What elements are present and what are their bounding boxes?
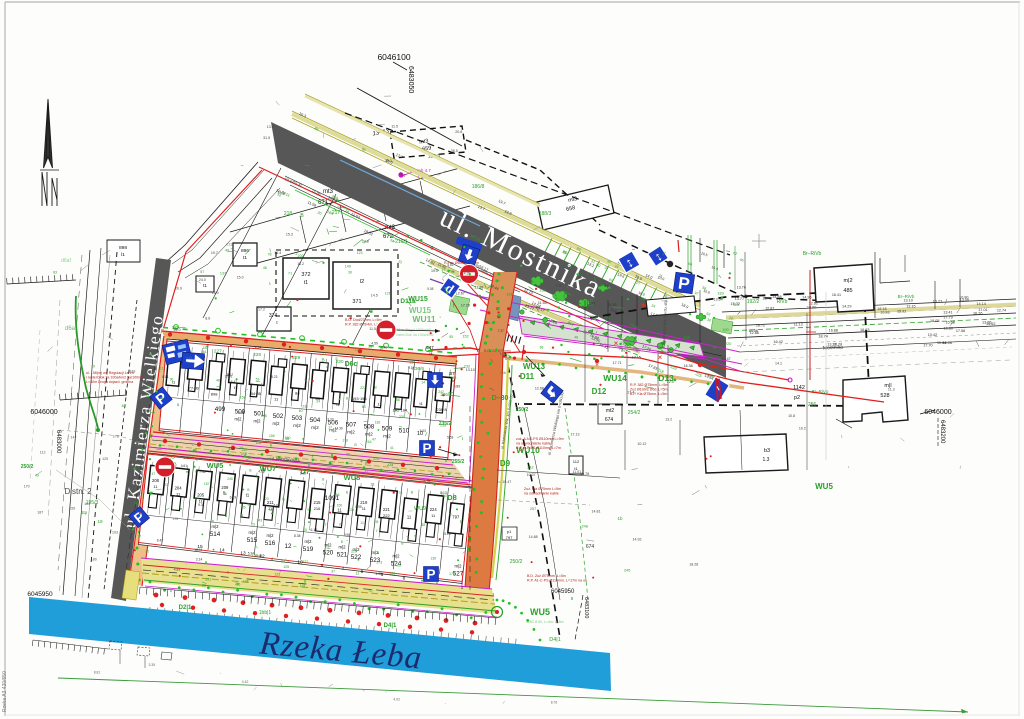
svg-text:m|2: m|2 [843, 278, 852, 284]
svg-text:B: B [321, 358, 324, 364]
svg-text:250/2: 250/2 [21, 464, 34, 470]
svg-text:80: 80 [146, 385, 150, 389]
svg-text:D4|1: D4|1 [384, 623, 397, 629]
svg-text:121: 121 [385, 291, 391, 295]
svg-text:161: 161 [201, 350, 207, 354]
svg-text:222: 222 [302, 560, 308, 564]
svg-text:220: 220 [351, 550, 357, 554]
svg-text:193·195: 193·195 [352, 396, 367, 401]
svg-text:m|2: m|2 [235, 416, 243, 421]
svg-text:mt3: mt3 [419, 138, 429, 145]
svg-text:235: 235 [186, 357, 192, 361]
svg-text:8.81: 8.81 [94, 671, 101, 675]
svg-text:516: 516 [265, 540, 276, 547]
svg-text:53: 53 [256, 378, 260, 382]
svg-text:mt2: mt2 [606, 408, 615, 414]
svg-text:13.2: 13.2 [665, 418, 672, 422]
svg-text:12.0: 12.0 [667, 380, 674, 384]
svg-text:13.10: 13.10 [466, 368, 475, 372]
svg-text:178: 178 [342, 439, 348, 443]
svg-text:16.42: 16.42 [773, 340, 783, 344]
svg-text:49: 49 [225, 249, 229, 253]
svg-text:514: 514 [210, 531, 221, 538]
svg-text:3.02: 3.02 [300, 472, 307, 476]
svg-text:15.48: 15.48 [762, 296, 772, 300]
svg-text:6.89: 6.89 [454, 385, 461, 389]
svg-text:m|2: m|2 [304, 539, 312, 544]
svg-text:108: 108 [256, 441, 262, 445]
svg-text:4.39: 4.39 [556, 283, 562, 287]
svg-text:16: 16 [409, 456, 413, 460]
svg-text:D2|1: D2|1 [179, 605, 192, 611]
svg-text:RiVb: RiVb [777, 299, 788, 305]
svg-text:Distn. 2: Distn. 2 [64, 487, 92, 496]
svg-text:11.5: 11.5 [369, 327, 376, 331]
svg-text:7.36: 7.36 [199, 470, 205, 474]
svg-text:57: 57 [146, 550, 150, 554]
svg-text:+: + [647, 400, 651, 406]
svg-text:24: 24 [393, 409, 397, 413]
svg-text:18.05: 18.05 [930, 319, 940, 323]
svg-text:65: 65 [369, 589, 373, 593]
svg-text:20.9: 20.9 [175, 287, 182, 291]
svg-text:4.30: 4.30 [376, 572, 382, 576]
svg-text:m|2: m|2 [365, 432, 373, 437]
svg-text:26: 26 [242, 506, 246, 510]
svg-text:17.4: 17.4 [627, 390, 634, 394]
svg-text:15.0: 15.0 [237, 276, 244, 280]
svg-text:6: 6 [361, 569, 364, 575]
svg-text:2a: 2a [387, 462, 394, 468]
svg-text:1tp: 1tp [81, 510, 88, 515]
svg-text:371: 371 [352, 299, 361, 305]
svg-text:na odwadnianie kable: na odwadnianie kable [524, 491, 559, 495]
svg-text:7.40: 7.40 [381, 346, 388, 350]
svg-text:77·80: 77·80 [189, 386, 200, 391]
svg-text:8.96: 8.96 [344, 533, 351, 537]
svg-text:16.88: 16.88 [829, 328, 838, 332]
svg-text:13.05: 13.05 [982, 320, 992, 324]
svg-text:13.37: 13.37 [827, 343, 836, 347]
svg-text:509: 509 [382, 426, 393, 433]
svg-text:208: 208 [152, 478, 160, 483]
svg-text:8.81: 8.81 [162, 375, 169, 379]
svg-text:l1: l1 [121, 252, 125, 258]
svg-text:47: 47 [152, 472, 156, 476]
svg-text:7.03: 7.03 [273, 504, 280, 508]
svg-text:6046100: 6046100 [377, 52, 410, 62]
svg-text:12: 12 [160, 366, 164, 370]
svg-text:B.P. Kla Ø75mm, L=5m: B.P. Kla Ø75mm, L=5m [630, 392, 667, 396]
svg-text:t1: t1 [243, 255, 247, 261]
svg-text:137: 137 [220, 271, 226, 275]
svg-text:48: 48 [216, 379, 220, 383]
svg-text:190: 190 [587, 315, 593, 319]
svg-text:257: 257 [530, 507, 536, 511]
svg-text:11.71: 11.71 [587, 301, 596, 305]
svg-text:121: 121 [357, 251, 363, 255]
svg-text:2.14: 2.14 [196, 557, 203, 561]
svg-text:6483050: 6483050 [407, 66, 414, 93]
svg-text:9.34: 9.34 [198, 503, 204, 507]
svg-text:256: 256 [808, 402, 817, 408]
svg-text:84: 84 [295, 390, 300, 395]
svg-text:215: 215 [314, 500, 322, 505]
svg-text:143: 143 [256, 519, 262, 523]
svg-text:7.37: 7.37 [498, 329, 504, 333]
svg-text:19.7: 19.7 [211, 251, 218, 255]
svg-text:10.37: 10.37 [527, 473, 536, 477]
svg-text:8.42: 8.42 [157, 538, 164, 542]
svg-text:898: 898 [211, 391, 218, 396]
svg-text:WU13: WU13 [523, 362, 546, 371]
svg-text:9: 9 [321, 563, 324, 569]
svg-text:15.47: 15.47 [502, 480, 511, 484]
svg-text:14.1: 14.1 [775, 362, 782, 366]
svg-text:53: 53 [146, 394, 150, 398]
svg-text:4.94: 4.94 [255, 345, 262, 349]
svg-text:178: 178 [113, 434, 119, 438]
svg-text:WU11: WU11 [412, 314, 435, 324]
svg-text:204: 204 [175, 485, 183, 490]
svg-text:11: 11 [407, 515, 412, 520]
svg-text:D–30: D–30 [492, 395, 509, 402]
svg-text:8: 8 [403, 576, 406, 582]
svg-text:19.0: 19.0 [431, 269, 438, 273]
svg-text:225: 225 [373, 457, 379, 461]
svg-text:209: 209 [221, 485, 229, 490]
svg-text:D6c: D6c [345, 361, 358, 368]
svg-text:14.14: 14.14 [976, 302, 986, 306]
svg-text:m|2: m|2 [311, 425, 319, 430]
svg-text:37: 37 [331, 569, 335, 573]
svg-text:l2: l2 [360, 279, 364, 285]
svg-text:20: 20 [303, 528, 307, 532]
svg-text:503: 503 [292, 415, 303, 422]
svg-text:14.29: 14.29 [842, 305, 852, 309]
svg-text:112: 112 [40, 451, 46, 455]
svg-text:5.08: 5.08 [427, 287, 433, 291]
svg-text:R.P. 382 Ø75mm, L=5m: R.P. 382 Ø75mm, L=5m [630, 383, 668, 387]
svg-text:186/8: 186/8 [472, 184, 485, 190]
svg-text:15.93: 15.93 [897, 309, 906, 313]
svg-text:13.5: 13.5 [267, 125, 274, 129]
svg-text:p1: p1 [507, 529, 512, 534]
svg-text:18.74: 18.74 [818, 335, 828, 339]
svg-text:222: 222 [360, 386, 366, 390]
svg-text:B.D. Zuż Ø75mm, L=5m: B.D. Zuż Ø75mm, L=5m [527, 574, 566, 578]
svg-text:16.4: 16.4 [274, 251, 281, 255]
svg-text:WU9: WU9 [414, 506, 426, 512]
svg-text:14: 14 [219, 547, 225, 553]
svg-text:898: 898 [119, 245, 127, 251]
svg-text:17.29: 17.29 [461, 303, 470, 307]
svg-text:510: 510 [399, 428, 410, 435]
svg-text:6.03: 6.03 [420, 429, 426, 433]
svg-text:15.23: 15.23 [933, 300, 943, 304]
svg-text:100: 100 [722, 328, 728, 332]
svg-text:22.0: 22.0 [174, 328, 181, 332]
svg-text:136: 136 [430, 557, 436, 561]
svg-text:9.18: 9.18 [408, 366, 414, 370]
svg-text:255/2: 255/2 [452, 459, 465, 465]
svg-text:46: 46 [263, 266, 267, 270]
svg-text:Rzeka A3 420/650: Rzeka A3 420/650 [2, 671, 8, 712]
svg-text:6483000: 6483000 [55, 430, 61, 454]
svg-text:8.32: 8.32 [183, 456, 189, 460]
svg-text:11: 11 [360, 521, 364, 525]
svg-text:238: 238 [500, 371, 506, 375]
svg-text:83: 83 [53, 270, 57, 274]
svg-text:R.P. A-P-PS Ø110mm L=7m: R.P. A-P-PS Ø110mm L=7m [516, 446, 561, 450]
svg-text:28: 28 [329, 462, 333, 466]
svg-text:522: 522 [351, 554, 362, 561]
svg-text:166: 166 [334, 493, 340, 497]
svg-text:372: 372 [301, 272, 310, 278]
svg-text:14.88: 14.88 [772, 295, 782, 299]
svg-text:D4|1: D4|1 [549, 637, 561, 643]
svg-text:27: 27 [323, 523, 327, 527]
svg-text:10.12: 10.12 [637, 442, 646, 446]
svg-text:188: 188 [394, 398, 400, 402]
svg-text:216: 216 [366, 440, 372, 444]
svg-text:m|2: m|2 [211, 524, 219, 529]
svg-text:131: 131 [143, 400, 149, 404]
svg-text:28: 28 [370, 482, 374, 486]
svg-text:14.81: 14.81 [592, 510, 601, 514]
svg-text:6483200: 6483200 [939, 420, 945, 444]
svg-text:12.74: 12.74 [997, 309, 1006, 313]
svg-text:13: 13 [240, 551, 246, 557]
svg-text:m|2: m|2 [273, 421, 281, 426]
svg-text:245: 245 [624, 569, 630, 573]
svg-text:28: 28 [374, 520, 378, 524]
svg-text:23: 23 [265, 497, 269, 501]
svg-text:D8: D8 [447, 493, 457, 502]
svg-text:22: 22 [397, 564, 401, 568]
svg-text:17.70: 17.70 [923, 343, 932, 347]
svg-text:15.0: 15.0 [212, 291, 219, 295]
svg-text:D12: D12 [592, 387, 607, 396]
svg-text:10.42: 10.42 [928, 333, 938, 337]
svg-text:227: 227 [214, 348, 222, 354]
svg-text:14.47: 14.47 [722, 357, 731, 361]
svg-text:WU14: WU14 [603, 373, 627, 383]
svg-text:8.68: 8.68 [238, 411, 245, 415]
svg-text:4.42: 4.42 [242, 680, 249, 684]
svg-text:10.2: 10.2 [799, 427, 806, 431]
svg-text:125: 125 [102, 457, 108, 461]
svg-text:4.61: 4.61 [181, 464, 188, 468]
svg-text:202: 202 [298, 254, 304, 258]
svg-text:528: 528 [880, 393, 889, 399]
svg-text:485: 485 [843, 288, 852, 294]
svg-text:547: 547 [426, 345, 434, 350]
svg-text:228: 228 [253, 352, 261, 358]
svg-text:d6a: d6a [65, 326, 76, 332]
svg-text:167: 167 [204, 482, 210, 486]
svg-text:515: 515 [247, 537, 258, 544]
svg-text:6046000: 6046000 [924, 409, 951, 416]
svg-text:14.88: 14.88 [529, 535, 538, 539]
svg-text:8.76: 8.76 [551, 700, 558, 704]
svg-text:84·85: 84·85 [251, 391, 262, 396]
svg-text:4.83: 4.83 [174, 567, 181, 571]
svg-text:13: 13 [281, 560, 285, 564]
svg-text:m|2: m|2 [347, 429, 355, 434]
svg-text:238: 238 [450, 376, 456, 380]
svg-text:170: 170 [24, 485, 30, 489]
svg-text:18.23: 18.23 [269, 375, 277, 379]
svg-text:Zuż. Kla Ø75mm L=5m: Zuż. Kla Ø75mm L=5m [524, 487, 561, 491]
svg-text:16.38: 16.38 [684, 364, 693, 368]
svg-text:502: 502 [273, 413, 284, 420]
svg-text:224: 224 [430, 507, 438, 512]
svg-text:48: 48 [574, 336, 578, 340]
svg-text:5.75: 5.75 [423, 479, 430, 483]
svg-text:504: 504 [310, 417, 321, 424]
svg-text:Zuż Ø100/2 Dod. L=5m: Zuż Ø100/2 Dod. L=5m [630, 387, 667, 391]
svg-text:m|2: m|2 [254, 419, 262, 424]
svg-text:182: 182 [375, 421, 381, 425]
svg-text:11: 11 [356, 572, 360, 576]
svg-text:18.28: 18.28 [689, 562, 698, 566]
svg-text:150: 150 [337, 504, 343, 508]
svg-text:520: 520 [323, 549, 334, 556]
svg-text:P: P [422, 441, 431, 456]
svg-text:41: 41 [390, 446, 394, 450]
svg-text:507: 507 [346, 421, 357, 428]
svg-text:173: 173 [376, 561, 382, 565]
svg-text:239: 239 [399, 415, 405, 419]
svg-text:133: 133 [326, 467, 332, 471]
svg-text:i naterOlok 3a 100a/km2: i naterOlok 3a 100a/km2 [394, 333, 433, 337]
svg-text:176: 176 [449, 572, 455, 576]
svg-text:97: 97 [195, 470, 199, 474]
svg-text:7: 7 [342, 566, 345, 572]
svg-text:17: 17 [350, 353, 354, 357]
svg-text:125: 125 [283, 565, 289, 569]
svg-text:18.72: 18.72 [756, 324, 765, 328]
svg-text:10.93: 10.93 [880, 310, 889, 314]
svg-text:519: 519 [303, 546, 314, 553]
svg-text:R.P. A1-C-PS Ø110mm, L=17m na: R.P. A1-C-PS Ø110mm, L=17m na ob. [527, 578, 588, 582]
svg-text:47: 47 [372, 437, 376, 441]
svg-text:250/2: 250/2 [516, 407, 529, 413]
svg-text:13.88: 13.88 [474, 285, 483, 289]
svg-text:19: 19 [91, 365, 95, 369]
svg-text:1: 1 [461, 585, 464, 591]
svg-text:797: 797 [506, 535, 513, 540]
svg-text:8.95: 8.95 [355, 505, 361, 509]
svg-text:17.13: 17.13 [571, 433, 580, 437]
svg-text:W5C 8.00, L=4m, L=5m: W5C 8.00, L=4m, L=5m [526, 620, 563, 624]
svg-text:12.68: 12.68 [535, 387, 544, 391]
svg-text:5.34: 5.34 [248, 552, 254, 556]
svg-text:896: 896 [241, 248, 249, 254]
svg-text:23: 23 [350, 508, 354, 512]
svg-text:4.59: 4.59 [371, 342, 378, 346]
svg-text:10.90: 10.90 [959, 296, 968, 300]
svg-text:31.5: 31.5 [263, 136, 270, 140]
svg-text:220: 220 [725, 342, 731, 346]
svg-text:68: 68 [540, 346, 544, 350]
svg-text:27: 27 [442, 268, 446, 272]
svg-text:8.6: 8.6 [205, 317, 210, 321]
svg-text:30: 30 [348, 270, 352, 274]
svg-text:521: 521 [337, 552, 348, 559]
svg-text:17: 17 [328, 426, 332, 430]
svg-text:11.55: 11.55 [538, 301, 547, 305]
svg-text:213: 213 [226, 242, 232, 246]
svg-text:112: 112 [573, 459, 580, 464]
svg-text:187: 187 [37, 511, 43, 515]
svg-text:242: 242 [438, 390, 444, 394]
svg-text:8.38: 8.38 [294, 534, 301, 538]
svg-text:216: 216 [314, 506, 321, 511]
svg-text:38: 38 [285, 437, 289, 441]
svg-text:17.01: 17.01 [978, 308, 987, 312]
svg-text:19: 19 [97, 519, 103, 524]
svg-text:158: 158 [240, 395, 246, 399]
svg-text:129: 129 [355, 348, 361, 352]
svg-text:24.8: 24.8 [362, 239, 369, 243]
svg-text:6045950: 6045950 [551, 589, 575, 595]
svg-text:15.68: 15.68 [945, 321, 955, 325]
svg-text:221: 221 [383, 507, 391, 512]
svg-text:12.86: 12.86 [750, 331, 759, 335]
svg-text:Br–RiVb: Br–RiVb [803, 251, 822, 257]
svg-text:236·8: 236·8 [436, 407, 447, 412]
svg-text:38.5: 38.5 [451, 149, 458, 153]
svg-text:5.53: 5.53 [447, 436, 453, 440]
svg-text:1bb|1: 1bb|1 [259, 610, 272, 616]
svg-text:156: 156 [269, 434, 275, 438]
svg-text:71: 71 [288, 272, 292, 276]
svg-text:17: 17 [364, 469, 368, 473]
svg-text:WU8: WU8 [344, 473, 361, 482]
svg-text:231: 231 [390, 571, 396, 575]
svg-text:176: 176 [173, 517, 179, 521]
svg-text:208: 208 [261, 414, 267, 418]
svg-text:152: 152 [462, 334, 468, 338]
svg-text:16.63: 16.63 [860, 328, 870, 332]
svg-text:123: 123 [274, 573, 280, 577]
svg-text:p2: p2 [794, 395, 800, 401]
svg-text:183: 183 [717, 291, 723, 295]
svg-text:24.0: 24.0 [199, 278, 206, 282]
svg-text:L=50m Droga dojazd. gminna: L=50m Droga dojazd. gminna [86, 380, 133, 384]
svg-text:231: 231 [205, 577, 211, 581]
svg-text:1b: 1b [617, 516, 623, 521]
svg-text:86: 86 [236, 583, 240, 587]
svg-text:P: P [426, 567, 435, 582]
svg-text:×: × [658, 353, 663, 362]
svg-text:12.61: 12.61 [809, 302, 818, 306]
svg-text:11.5: 11.5 [391, 125, 398, 129]
svg-text:m|2: m|2 [338, 545, 346, 550]
svg-text:ul. 158(m) wg Regulacji 1a/VII: ul. 158(m) wg Regulacji 1a/VII [86, 371, 134, 375]
svg-text:13.15: 13.15 [906, 304, 915, 308]
svg-text:m|2: m|2 [248, 530, 256, 535]
svg-text:164: 164 [84, 502, 90, 506]
svg-text:218: 218 [284, 211, 293, 217]
svg-text:4.02: 4.02 [393, 698, 400, 702]
svg-text:674: 674 [605, 417, 614, 423]
svg-text:39.3: 39.3 [385, 159, 392, 163]
svg-text:245: 245 [227, 477, 233, 481]
svg-text:d6af: d6af [61, 258, 71, 264]
